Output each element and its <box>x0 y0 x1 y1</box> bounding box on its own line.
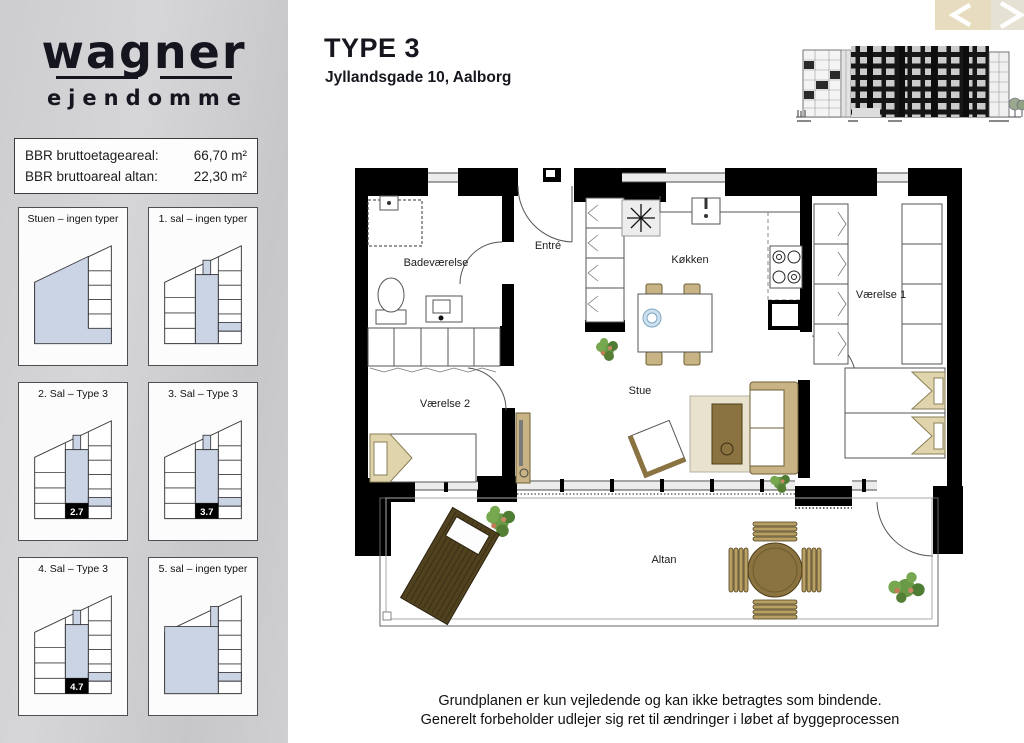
floor-card-4-sal-type3[interactable]: 4. Sal – Type 3 4.7 <box>18 557 128 716</box>
room-label-entry: Entré <box>535 240 561 252</box>
balcony-table-set <box>729 522 821 619</box>
floor-card-diagram: 3.7 <box>157 403 249 525</box>
bbr-value-balcony-area: 22,30 m² <box>194 166 247 187</box>
floor-card-diagram <box>157 578 249 700</box>
shaft <box>770 302 800 328</box>
stove-icon <box>770 246 802 288</box>
room-label-balcony: Altan <box>651 554 676 566</box>
floor-plan: Badeværelse Entré Køkken Værelse 1 Værel… <box>350 162 968 642</box>
sofa <box>750 382 798 474</box>
bbr-row: BBR bruttoareal altan: 22,30 m² <box>25 166 247 187</box>
floor-card-label: 3. Sal – Type 3 <box>149 388 257 400</box>
floor-card-2-sal-type3[interactable]: 2. Sal – Type 3 2.7 <box>18 382 128 541</box>
plant-icon <box>596 338 618 361</box>
disclaimer: Grundplanen er kun vejledende og kan ikk… <box>330 692 990 730</box>
sidebar: wagner ejendomme BBR bruttoetageareal: 6… <box>0 0 288 743</box>
floor-card-diagram: 2.7 <box>27 403 119 525</box>
floor-card-3-sal-type3[interactable]: 3. Sal – Type 3 3.7 <box>148 382 258 541</box>
bbr-row: BBR bruttoetageareal: 66,70 m² <box>25 145 247 166</box>
floor-card-diagram <box>157 228 249 350</box>
floor-badge: 4.7 <box>70 682 83 693</box>
floor-card-5-sal[interactable]: 5. sal – ingen typer <box>148 557 258 716</box>
floor-badge: 2.7 <box>70 507 83 518</box>
armchair <box>628 420 685 477</box>
room-label-room2: Værelse 2 <box>420 398 470 410</box>
area-info-box: BBR bruttoetageareal: 66,70 m² BBR brutt… <box>14 138 258 194</box>
sink-icon <box>426 296 462 322</box>
room-label-kitchen: Køkken <box>671 254 708 266</box>
brand-logo: wagner ejendomme <box>0 28 288 110</box>
sun-lounger <box>401 507 500 624</box>
disclaimer-line-2: Generelt forbeholder udlejer sig ret til… <box>330 711 990 730</box>
disclaimer-line-1: Grundplanen er kun vejledende og kan ikk… <box>330 692 990 711</box>
floor-card-diagram <box>27 228 119 350</box>
floor-card-stuen[interactable]: Stuen – ingen typer <box>18 207 128 366</box>
elevation-caption-marks <box>797 120 1009 122</box>
plant-icon <box>884 565 930 611</box>
floor-card-label: 4. Sal – Type 3 <box>19 563 127 575</box>
floor-card-label: 5. sal – ingen typer <box>149 563 257 575</box>
floor-card-label: Stuen – ingen typer <box>19 213 127 225</box>
living-room-furniture <box>516 382 798 483</box>
bbr-label-balcony-area: BBR bruttoareal altan: <box>25 166 158 187</box>
dining-set <box>638 284 712 365</box>
double-bed <box>845 368 945 458</box>
single-bed <box>370 434 476 482</box>
room-label-living: Stue <box>629 385 652 397</box>
brand-subtitle: ejendomme <box>0 86 288 110</box>
room-label-bathroom: Badeværelse <box>404 257 469 269</box>
kitchen-sink-icon <box>692 198 720 224</box>
floor-card-diagram: 4.7 <box>27 578 119 700</box>
floor-badge: 3.7 <box>200 507 213 518</box>
wardrobe-right <box>902 204 942 364</box>
page-title: TYPE 3 <box>324 33 420 64</box>
floor-card-label: 2. Sal – Type 3 <box>19 388 127 400</box>
wardrobe-left <box>814 204 848 364</box>
floor-card-label: 1. sal – ingen typer <box>149 213 257 225</box>
room-label-room1: Værelse 1 <box>856 289 906 301</box>
tree-icon <box>1009 98 1024 117</box>
page-subtitle: Jyllandsgade 10, Aalborg <box>325 69 511 87</box>
closet-row <box>368 328 500 372</box>
floor-card-1-sal[interactable]: 1. sal – ingen typer <box>148 207 258 366</box>
toilet-icon <box>376 278 406 324</box>
tv-board <box>516 413 530 483</box>
entry-wardrobe <box>586 198 624 322</box>
bbr-value-gross-area: 66,70 m² <box>194 145 247 166</box>
round-table <box>748 543 802 597</box>
brand-name: wagner <box>0 28 288 76</box>
building-elevation <box>793 20 1024 134</box>
bbr-label-gross-area: BBR bruttoetageareal: <box>25 145 159 166</box>
